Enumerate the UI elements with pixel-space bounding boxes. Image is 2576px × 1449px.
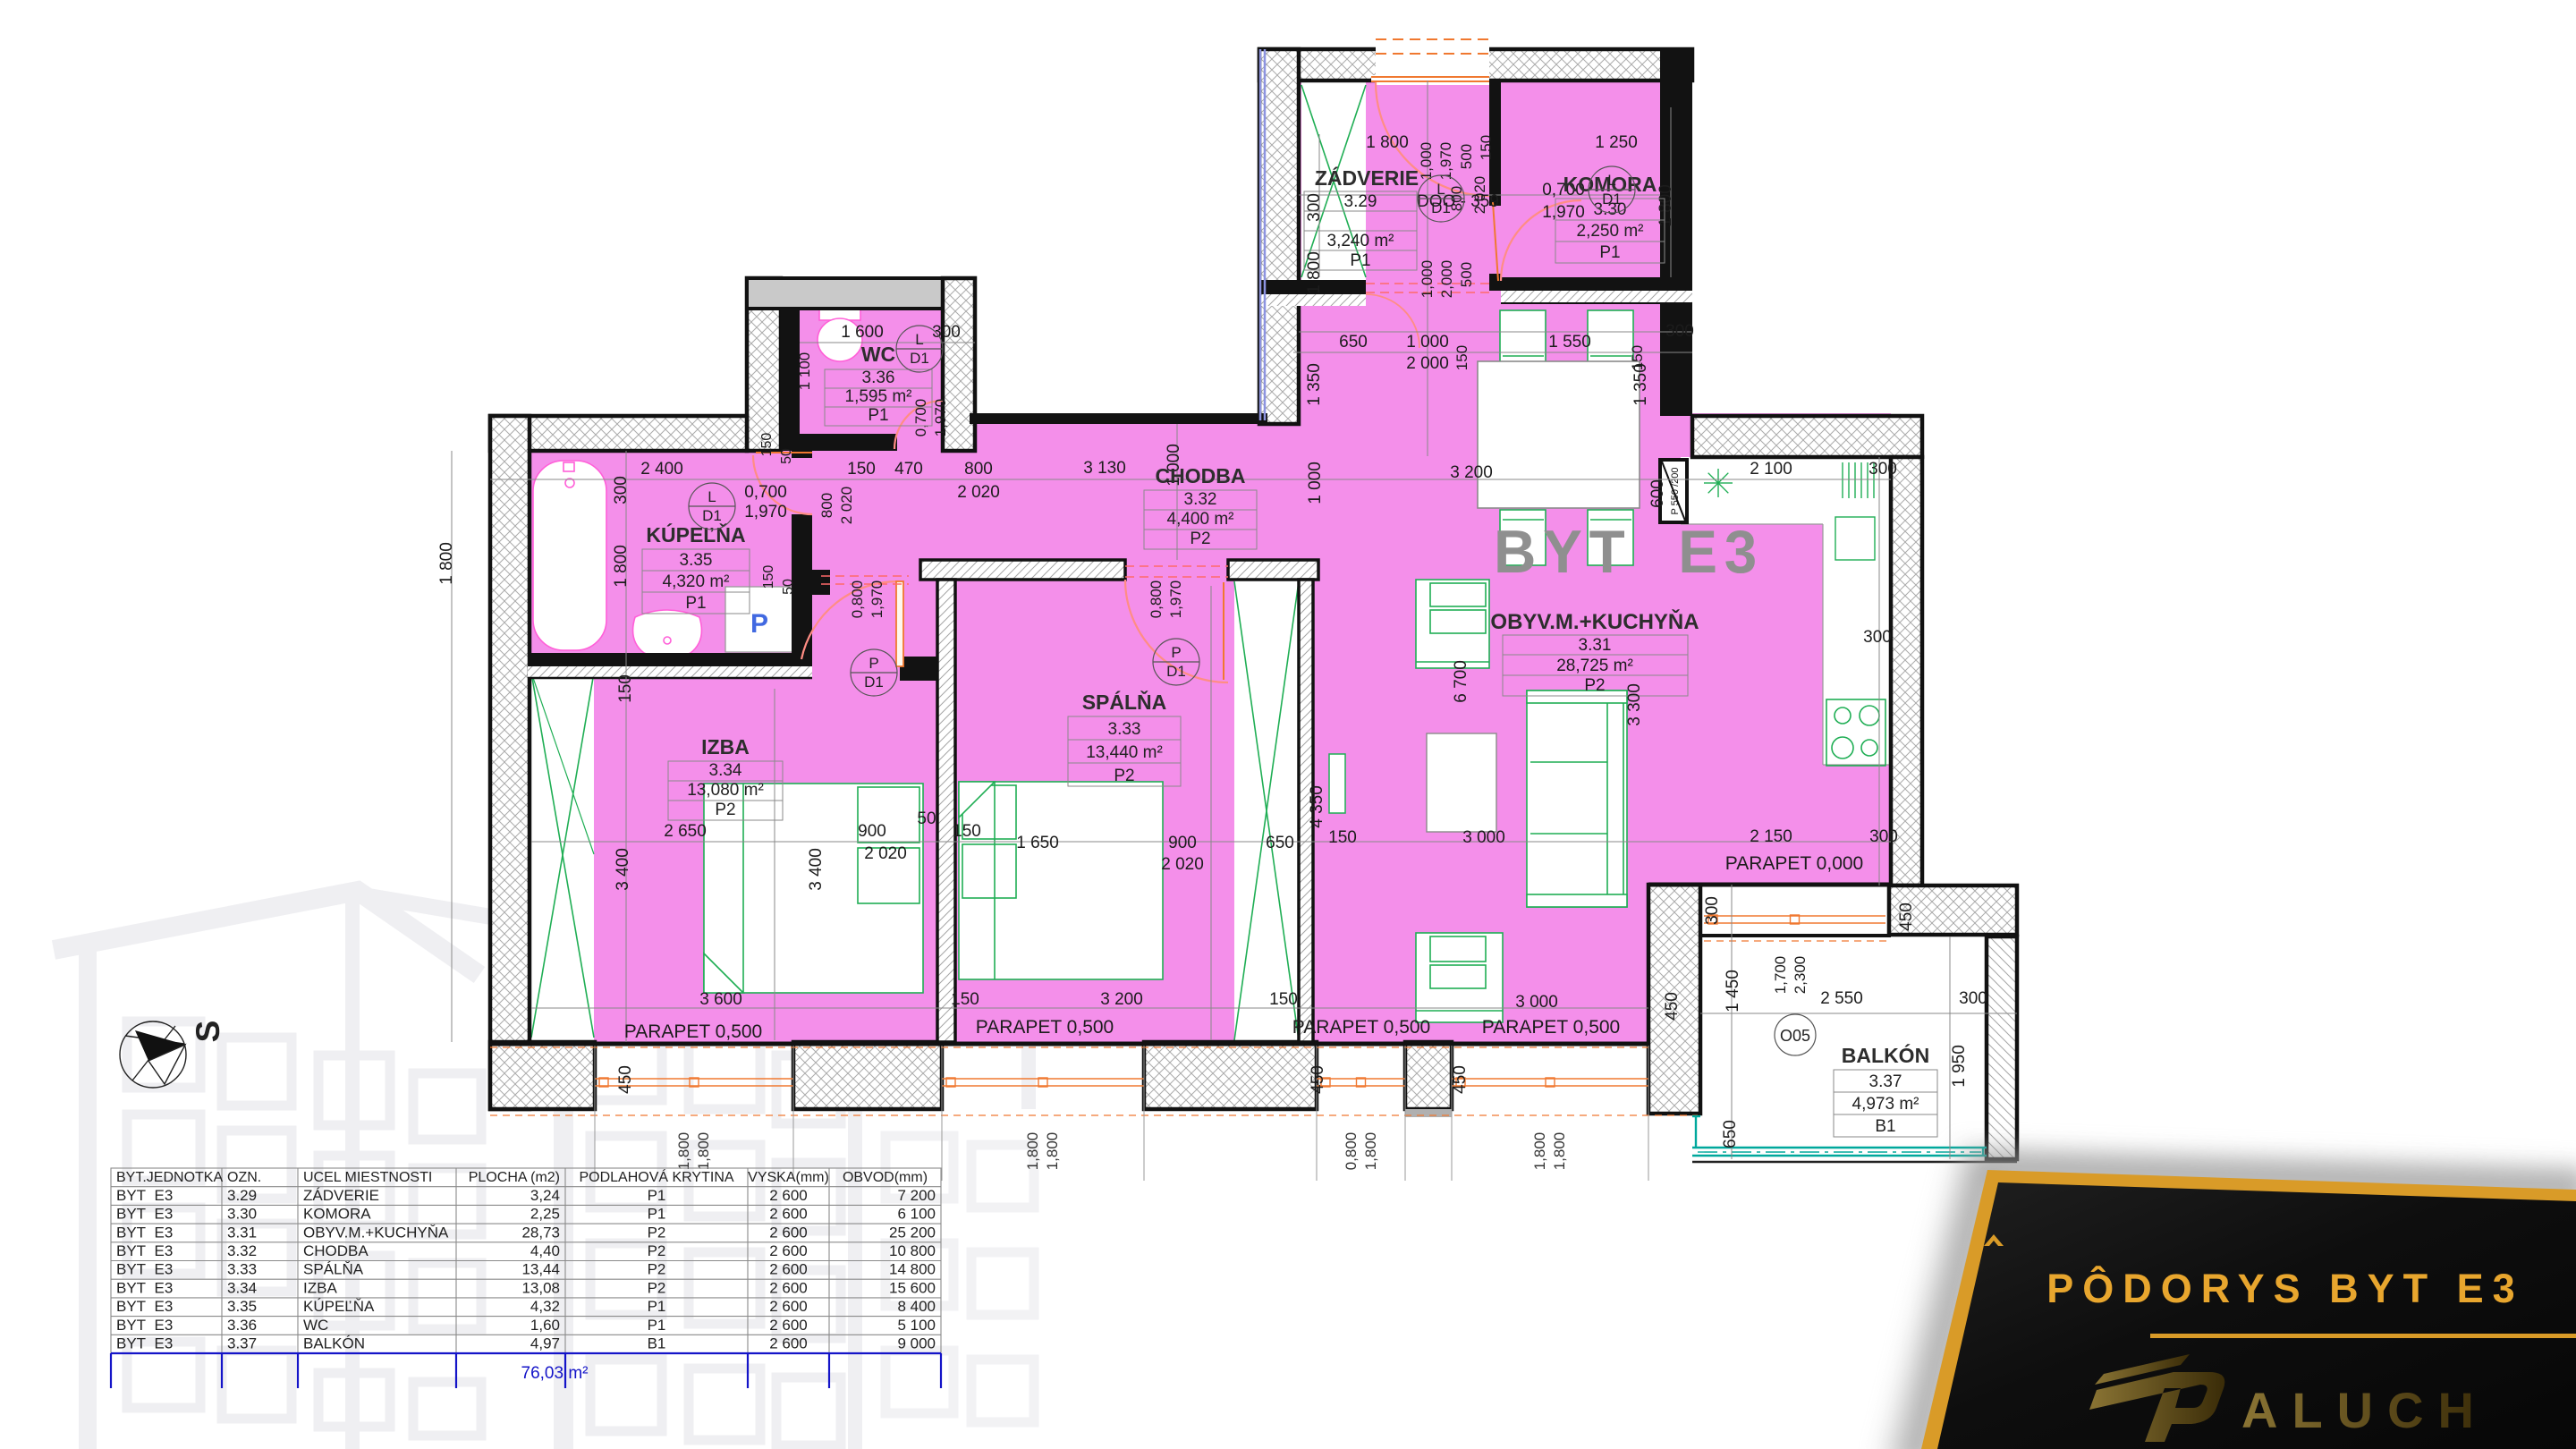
svg-text:3 200: 3 200 xyxy=(1100,990,1143,1009)
svg-text:1 000: 1 000 xyxy=(1306,462,1325,504)
svg-text:1 950: 1 950 xyxy=(1950,1045,1969,1088)
svg-text:BYT E3: BYT E3 xyxy=(116,1335,173,1352)
svg-text:L: L xyxy=(1436,181,1445,198)
svg-text:OBYV.M.+KUCHYŇA: OBYV.M.+KUCHYŇA xyxy=(1490,609,1699,634)
svg-text:500: 500 xyxy=(1458,262,1475,287)
svg-text:300: 300 xyxy=(1869,827,1898,846)
svg-text:28,73: 28,73 xyxy=(521,1224,560,1241)
svg-text:BYT E3: BYT E3 xyxy=(116,1206,173,1223)
svg-text:B1: B1 xyxy=(1875,1117,1895,1136)
svg-text:P1: P1 xyxy=(648,1317,666,1334)
svg-text:P2: P2 xyxy=(648,1242,666,1259)
svg-text:BYT E3: BYT E3 xyxy=(116,1224,173,1241)
svg-text:1 800: 1 800 xyxy=(612,545,631,588)
svg-text:WC: WC xyxy=(861,343,895,366)
svg-text:28,725 m²: 28,725 m² xyxy=(1556,657,1633,675)
svg-text:SPÁLŇA: SPÁLŇA xyxy=(1082,690,1167,714)
svg-text:2,300: 2,300 xyxy=(1792,956,1809,995)
svg-text:3 130: 3 130 xyxy=(1083,459,1126,478)
svg-text:2 550: 2 550 xyxy=(1820,989,1863,1008)
svg-text:2 600: 2 600 xyxy=(769,1224,808,1241)
svg-text:B1: B1 xyxy=(648,1335,666,1352)
svg-text:4,320 m²: 4,320 m² xyxy=(663,572,730,591)
svg-text:3 400: 3 400 xyxy=(614,848,632,891)
svg-text:10 800: 10 800 xyxy=(889,1242,936,1259)
svg-text:BALKÓN: BALKÓN xyxy=(303,1335,365,1352)
svg-text:PARAPET 0,000: PARAPET 0,000 xyxy=(1725,853,1863,874)
svg-text:4,40: 4,40 xyxy=(530,1242,560,1259)
svg-text:3 300: 3 300 xyxy=(1625,683,1644,726)
svg-text:KOMORA: KOMORA xyxy=(303,1206,371,1223)
svg-text:15 600: 15 600 xyxy=(889,1279,936,1296)
svg-text:2,25: 2,25 xyxy=(530,1206,560,1223)
svg-text:0,800: 0,800 xyxy=(849,580,866,619)
svg-text:3.37: 3.37 xyxy=(227,1335,257,1352)
svg-text:450: 450 xyxy=(1897,902,1916,931)
svg-text:3.37: 3.37 xyxy=(1869,1072,1902,1091)
svg-text:1,970: 1,970 xyxy=(744,503,787,521)
svg-text:2,000: 2,000 xyxy=(1438,260,1455,299)
svg-text:8 400: 8 400 xyxy=(897,1298,936,1315)
svg-text:1 350: 1 350 xyxy=(1631,363,1650,406)
svg-text:1,60: 1,60 xyxy=(530,1317,560,1334)
svg-text:P1: P1 xyxy=(1350,251,1370,270)
svg-text:OBVOD(mm): OBVOD(mm) xyxy=(843,1170,928,1185)
svg-text:UCEL MIESTNOSTI: UCEL MIESTNOSTI xyxy=(303,1170,432,1185)
svg-text:PARAPET 0,500: PARAPET 0,500 xyxy=(976,1017,1114,1038)
svg-text:150: 150 xyxy=(1328,828,1357,847)
svg-text:2 600: 2 600 xyxy=(769,1317,808,1334)
svg-text:1,800: 1,800 xyxy=(675,1132,692,1171)
svg-text:P1: P1 xyxy=(868,406,888,425)
svg-text:2 600: 2 600 xyxy=(769,1261,808,1278)
svg-text:300: 300 xyxy=(1959,989,1987,1008)
svg-text:1 800: 1 800 xyxy=(1657,184,1675,227)
svg-text:150: 150 xyxy=(1269,990,1298,1009)
svg-text:3.36: 3.36 xyxy=(862,369,895,387)
svg-text:3.35: 3.35 xyxy=(680,551,713,570)
svg-text:2 400: 2 400 xyxy=(640,460,683,479)
svg-text:KÚPEĽŇA: KÚPEĽŇA xyxy=(303,1298,375,1315)
svg-text:P2: P2 xyxy=(1190,530,1210,548)
svg-text:0,800: 0,800 xyxy=(1343,1132,1360,1171)
svg-text:2 600: 2 600 xyxy=(769,1206,808,1223)
svg-text:P1: P1 xyxy=(648,1298,666,1315)
svg-text:2 600: 2 600 xyxy=(769,1242,808,1259)
svg-text:WC: WC xyxy=(303,1317,328,1334)
svg-text:1,800: 1,800 xyxy=(1024,1132,1041,1171)
svg-text:2 020: 2 020 xyxy=(864,844,907,863)
svg-text:300: 300 xyxy=(1665,322,1694,341)
svg-text:P2: P2 xyxy=(648,1224,666,1241)
svg-text:2 020: 2 020 xyxy=(1161,855,1204,874)
svg-text:50: 50 xyxy=(781,579,796,595)
svg-text:150: 150 xyxy=(847,460,876,479)
svg-text:150: 150 xyxy=(761,565,776,589)
svg-text:1 100: 1 100 xyxy=(796,352,813,391)
svg-text:300: 300 xyxy=(1703,896,1722,925)
svg-text:150: 150 xyxy=(1453,345,1470,370)
svg-text:3.36: 3.36 xyxy=(227,1317,257,1334)
svg-text:1 550: 1 550 xyxy=(1548,333,1591,352)
svg-text:3.34: 3.34 xyxy=(227,1279,257,1296)
svg-text:PARAPET 0,500: PARAPET 0,500 xyxy=(624,1021,762,1042)
svg-text:P1: P1 xyxy=(648,1187,666,1204)
svg-text:P1: P1 xyxy=(1599,243,1620,262)
svg-text:14 800: 14 800 xyxy=(889,1261,936,1278)
svg-text:0,700: 0,700 xyxy=(912,399,929,437)
svg-text:ZÁDVERIE: ZÁDVERIE xyxy=(303,1187,379,1204)
svg-text:1 650: 1 650 xyxy=(1016,834,1059,852)
svg-text:KÚPEĽŇA: KÚPEĽŇA xyxy=(646,522,745,547)
svg-text:3.30: 3.30 xyxy=(227,1206,257,1223)
svg-text:3.31: 3.31 xyxy=(1579,636,1612,655)
svg-text:3.32: 3.32 xyxy=(1184,490,1217,509)
svg-text:D1: D1 xyxy=(1166,663,1186,680)
svg-text:2 150: 2 150 xyxy=(1750,827,1792,846)
svg-text:300: 300 xyxy=(1868,460,1897,479)
svg-text:BYT E3: BYT E3 xyxy=(116,1317,173,1334)
svg-text:3 200: 3 200 xyxy=(1450,463,1493,482)
svg-text:1,800: 1,800 xyxy=(1551,1132,1568,1171)
svg-text:IZBA: IZBA xyxy=(701,735,750,758)
svg-text:3,24: 3,24 xyxy=(530,1187,560,1204)
svg-text:ALUCH: ALUCH xyxy=(2241,1382,2488,1438)
svg-text:450: 450 xyxy=(1451,1065,1470,1094)
svg-text:600: 600 xyxy=(1648,479,1667,508)
svg-text:PARAPET 0,500: PARAPET 0,500 xyxy=(1482,1017,1620,1038)
svg-text:300: 300 xyxy=(1305,193,1324,222)
svg-text:4,97: 4,97 xyxy=(530,1335,560,1352)
svg-text:300: 300 xyxy=(612,476,631,504)
svg-text:3.35: 3.35 xyxy=(227,1298,257,1315)
svg-text:1,800: 1,800 xyxy=(1362,1132,1379,1171)
svg-text:1 450: 1 450 xyxy=(1724,970,1742,1013)
svg-text:P1: P1 xyxy=(648,1206,666,1223)
svg-text:2 600: 2 600 xyxy=(769,1298,808,1315)
svg-text:P2: P2 xyxy=(648,1261,666,1278)
svg-text:D1: D1 xyxy=(1602,191,1622,208)
svg-text:1 250: 1 250 xyxy=(1595,133,1638,152)
svg-text:150: 150 xyxy=(1478,135,1495,160)
svg-text:3 600: 3 600 xyxy=(699,990,742,1009)
svg-text:BYT E3: BYT E3 xyxy=(116,1242,173,1259)
svg-text:O05: O05 xyxy=(1780,1027,1810,1045)
svg-text:50: 50 xyxy=(917,809,936,828)
svg-text:25 200: 25 200 xyxy=(889,1224,936,1241)
svg-text:4,32: 4,32 xyxy=(530,1298,560,1315)
svg-text:P 550 /200: P 550 /200 xyxy=(1670,467,1681,514)
svg-text:150: 150 xyxy=(951,990,979,1009)
svg-text:450: 450 xyxy=(1309,1065,1327,1094)
svg-text:650: 650 xyxy=(1266,834,1294,852)
svg-text:1,970: 1,970 xyxy=(932,399,949,437)
svg-text:1,970: 1,970 xyxy=(1437,142,1454,181)
svg-text:3.33: 3.33 xyxy=(227,1261,257,1278)
svg-text:PLOCHA (m2): PLOCHA (m2) xyxy=(469,1170,560,1185)
svg-text:1 600: 1 600 xyxy=(841,323,884,342)
svg-text:6 700: 6 700 xyxy=(1452,660,1470,703)
svg-text:PARAPET 0,500: PARAPET 0,500 xyxy=(1292,1017,1430,1038)
svg-text:13,080 m²: 13,080 m² xyxy=(687,781,764,800)
svg-text:IZBA: IZBA xyxy=(303,1279,337,1296)
svg-text:76,03 m²: 76,03 m² xyxy=(521,1364,589,1383)
svg-text:ZÁDVERIE: ZÁDVERIE xyxy=(1315,165,1419,190)
svg-text:1,800: 1,800 xyxy=(1044,1132,1061,1171)
svg-text:3 000: 3 000 xyxy=(1515,993,1558,1012)
svg-text:1 000: 1 000 xyxy=(1406,333,1449,352)
svg-text:4 350: 4 350 xyxy=(1308,785,1326,828)
svg-text:OZN.: OZN. xyxy=(227,1170,261,1185)
svg-text:800: 800 xyxy=(964,460,993,479)
svg-text:P2: P2 xyxy=(1114,767,1134,785)
svg-text:P1: P1 xyxy=(685,594,706,613)
svg-text:150: 150 xyxy=(616,674,635,703)
svg-text:P2: P2 xyxy=(648,1279,666,1296)
svg-text:1,000: 1,000 xyxy=(1419,260,1436,299)
svg-text:CHODBA: CHODBA xyxy=(303,1242,369,1259)
svg-text:1,595 m²: 1,595 m² xyxy=(845,387,912,406)
svg-text:L: L xyxy=(915,331,923,348)
svg-text:S: S xyxy=(190,1021,226,1043)
svg-text:1 800: 1 800 xyxy=(1305,251,1324,294)
svg-text:BYT E3: BYT E3 xyxy=(116,1279,173,1296)
svg-text:P: P xyxy=(869,655,878,672)
svg-text:P: P xyxy=(750,609,768,639)
svg-text:2 000: 2 000 xyxy=(1406,354,1449,373)
svg-text:3 400: 3 400 xyxy=(807,848,826,891)
svg-text:13,08: 13,08 xyxy=(521,1279,560,1296)
svg-text:4,973 m²: 4,973 m² xyxy=(1852,1095,1919,1114)
svg-text:2 600: 2 600 xyxy=(769,1335,808,1352)
svg-text:P2: P2 xyxy=(715,801,735,819)
svg-text:3.29: 3.29 xyxy=(1344,192,1377,211)
svg-text:1,700: 1,700 xyxy=(1772,956,1789,995)
svg-text:1 800: 1 800 xyxy=(1366,133,1409,152)
svg-text:450: 450 xyxy=(616,1065,635,1094)
svg-text:OBYV.M.+KUCHYŇA: OBYV.M.+KUCHYŇA xyxy=(303,1224,449,1241)
svg-text:2 600: 2 600 xyxy=(769,1279,808,1296)
svg-text:13,44: 13,44 xyxy=(521,1261,560,1278)
svg-text:BYT E3: BYT E3 xyxy=(116,1298,173,1315)
svg-text:L: L xyxy=(1607,172,1615,189)
svg-text:1,970: 1,970 xyxy=(1167,580,1184,619)
svg-text:3.29: 3.29 xyxy=(227,1187,257,1204)
svg-text:SPÁLŇA: SPÁLŇA xyxy=(303,1261,364,1278)
svg-text:500: 500 xyxy=(1458,144,1475,169)
svg-text:150: 150 xyxy=(759,433,775,457)
svg-text:650: 650 xyxy=(1339,333,1368,352)
svg-text:PÔDORYS BYT E3: PÔDORYS BYT E3 xyxy=(2046,1266,2523,1311)
svg-text:900: 900 xyxy=(1168,834,1197,852)
svg-text:L: L xyxy=(708,488,716,505)
svg-text:CHODBA: CHODBA xyxy=(1156,464,1246,487)
svg-text:9 000: 9 000 xyxy=(897,1335,936,1352)
svg-text:3 000: 3 000 xyxy=(1462,828,1505,847)
svg-text:900: 900 xyxy=(858,822,886,841)
svg-text:5 100: 5 100 xyxy=(897,1317,936,1334)
svg-text:4,400 m²: 4,400 m² xyxy=(1167,510,1234,529)
svg-text:300: 300 xyxy=(1863,628,1892,647)
svg-text:0,800: 0,800 xyxy=(1148,580,1165,619)
svg-text:D1: D1 xyxy=(702,507,722,524)
svg-text:D1: D1 xyxy=(1431,199,1451,216)
svg-text:3.33: 3.33 xyxy=(1108,720,1141,739)
svg-text:3.31: 3.31 xyxy=(227,1224,257,1241)
svg-text:D1: D1 xyxy=(910,350,929,367)
svg-text:2 650: 2 650 xyxy=(664,822,707,841)
svg-text:P2: P2 xyxy=(1584,676,1605,695)
svg-text:BYT E3: BYT E3 xyxy=(116,1187,173,1204)
svg-text:BYT.JEDNOTKA: BYT.JEDNOTKA xyxy=(116,1170,223,1185)
svg-text:1,000: 1,000 xyxy=(1418,142,1435,181)
svg-text:650: 650 xyxy=(1721,1120,1740,1148)
svg-text:BALKÓN: BALKÓN xyxy=(1842,1043,1929,1067)
svg-text:1,970: 1,970 xyxy=(869,580,885,619)
svg-text:6 100: 6 100 xyxy=(897,1206,936,1223)
svg-text:800: 800 xyxy=(818,493,835,518)
svg-text:1,800: 1,800 xyxy=(695,1132,712,1171)
svg-text:150: 150 xyxy=(953,822,981,841)
svg-text:2 600: 2 600 xyxy=(769,1187,808,1204)
svg-text:2,250 m²: 2,250 m² xyxy=(1577,222,1644,241)
svg-text:470: 470 xyxy=(894,460,923,479)
svg-text:BYT E3: BYT E3 xyxy=(1494,518,1764,586)
svg-text:VYSKA(mm): VYSKA(mm) xyxy=(748,1170,829,1185)
svg-text:3.34: 3.34 xyxy=(709,761,742,780)
svg-text:50: 50 xyxy=(779,448,794,464)
svg-text:13,440 m²: 13,440 m² xyxy=(1086,743,1163,762)
svg-text:0,700: 0,700 xyxy=(744,483,787,502)
svg-text:1 800: 1 800 xyxy=(437,542,456,585)
svg-text:P: P xyxy=(1171,644,1181,661)
svg-text:450: 450 xyxy=(1663,992,1682,1021)
svg-text:1,800: 1,800 xyxy=(1531,1132,1548,1171)
svg-text:7 200: 7 200 xyxy=(897,1187,936,1204)
svg-text:D1: D1 xyxy=(864,674,884,691)
svg-text:1,970: 1,970 xyxy=(1542,203,1585,222)
svg-text:3.32: 3.32 xyxy=(227,1242,257,1259)
svg-text:BYT E3: BYT E3 xyxy=(116,1261,173,1278)
svg-text:2 020: 2 020 xyxy=(957,483,1000,502)
svg-text:1 350: 1 350 xyxy=(1305,363,1324,406)
svg-text:DOO - 359: DOO - 359 xyxy=(1417,192,1499,211)
svg-text:3,240 m²: 3,240 m² xyxy=(1327,232,1394,250)
svg-text:2 020: 2 020 xyxy=(838,487,855,525)
svg-text:PODLAHOVÁ KRYTINA: PODLAHOVÁ KRYTINA xyxy=(579,1168,733,1185)
svg-text:2 100: 2 100 xyxy=(1750,460,1792,479)
